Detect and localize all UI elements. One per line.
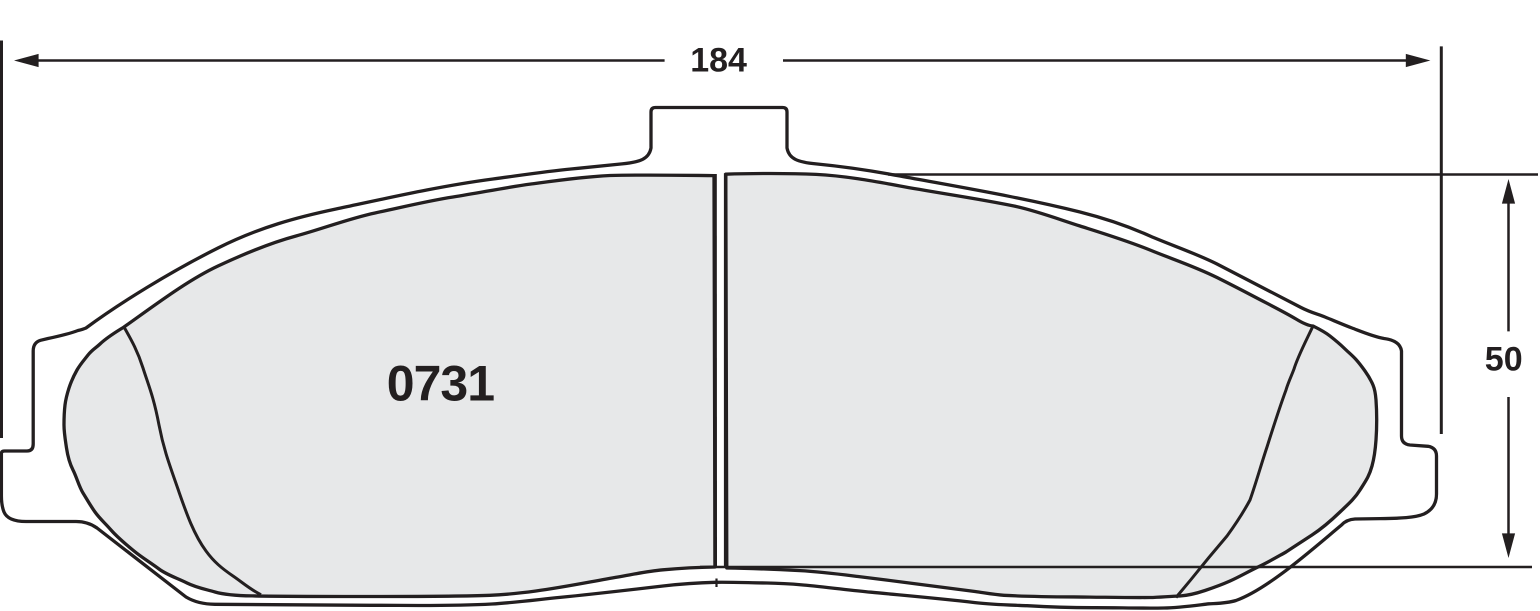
svg-text:50: 50 — [1485, 340, 1523, 378]
svg-text:0731: 0731 — [387, 356, 494, 412]
svg-text:184: 184 — [690, 42, 747, 80]
